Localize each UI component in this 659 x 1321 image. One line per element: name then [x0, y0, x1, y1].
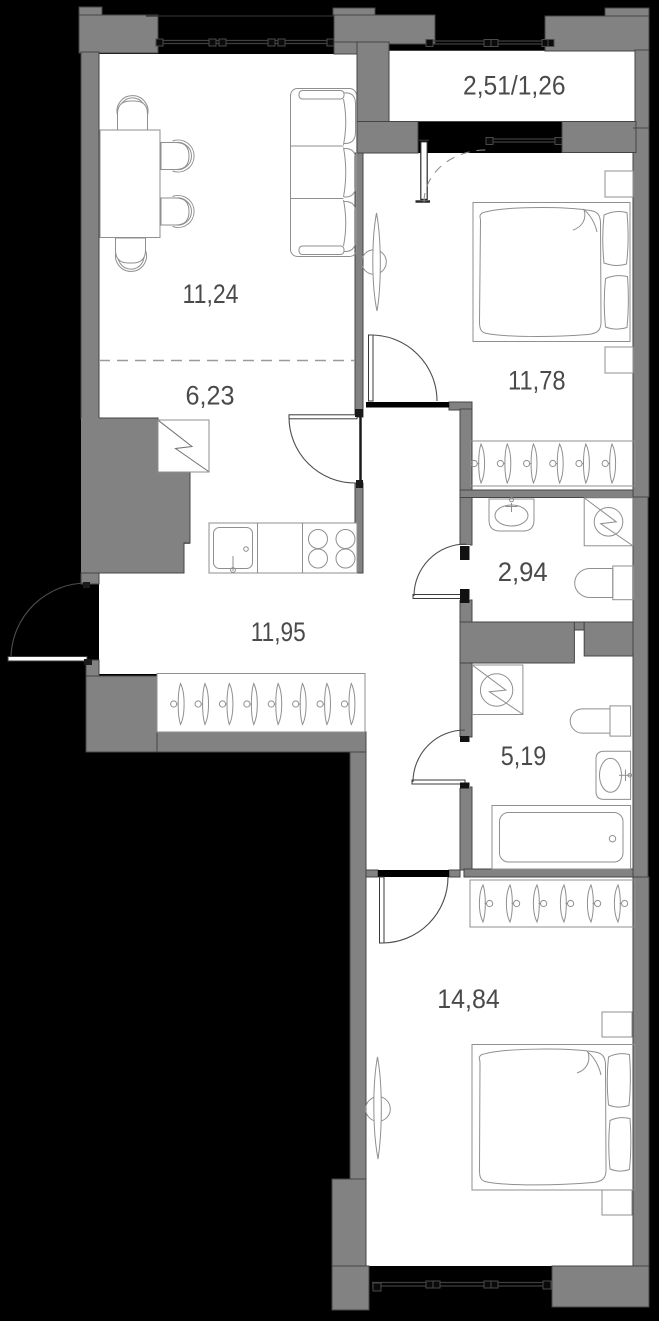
- svg-text:11,24: 11,24: [183, 279, 239, 309]
- svg-text:6,23: 6,23: [186, 381, 235, 411]
- svg-text:2,51/1,26: 2,51/1,26: [463, 71, 566, 101]
- svg-text:5,19: 5,19: [501, 741, 547, 771]
- svg-text:2,94: 2,94: [498, 557, 548, 587]
- svg-text:14,84: 14,84: [437, 984, 500, 1014]
- svg-text:11,95: 11,95: [251, 617, 306, 647]
- svg-text:11,78: 11,78: [508, 366, 566, 396]
